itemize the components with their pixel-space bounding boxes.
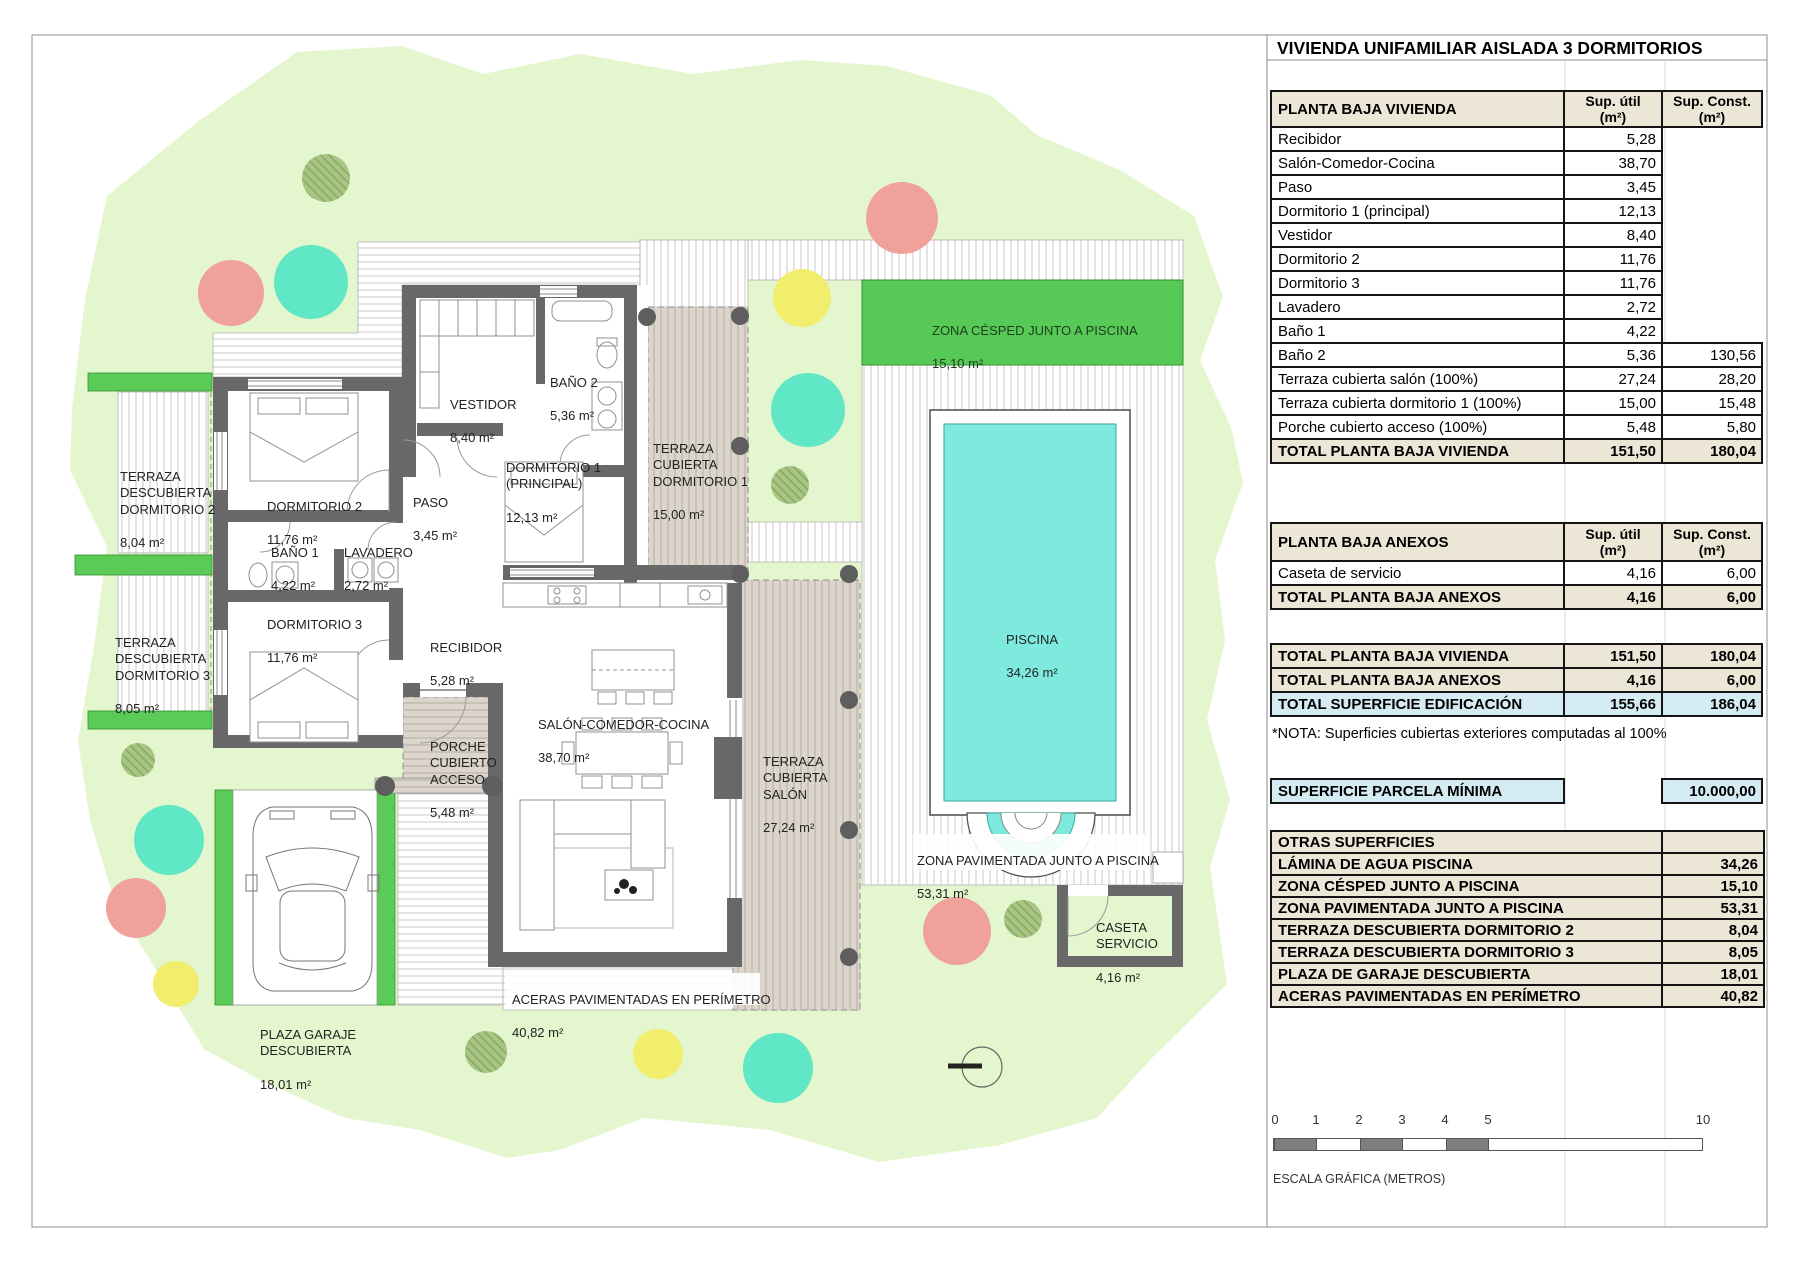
row-label: Porche cubierto acceso (100%) [1270,414,1565,440]
row-sup-util: 2,72 [1563,294,1663,320]
label-aceras: ACERAS PAVIMENTADAS EN PERÍMETRO 40,82 m… [512,975,771,1058]
tree-yellow [153,961,199,1007]
table-body: LÁMINA DE AGUA PISCINA 34,26 ZONA CÉSPED… [1270,852,1770,1008]
table-header: PLANTA BAJA VIVIENDA [1270,90,1565,128]
table-row: Salón-Comedor-Cocina 38,70 [1270,150,1770,176]
label-paso: PASO 3,45 m² [413,478,457,561]
table-total-row: TOTAL PLANTA BAJA VIVIENDA 151,50 180,04 [1270,438,1770,464]
table-body: Recibidor 5,28 Salón-Comedor-Cocina 38,7… [1270,126,1770,440]
table-header: OTRAS SUPERFICIES [1270,830,1663,854]
table-row: ZONA CÉSPED JUNTO A PISCINA 15,10 [1270,874,1770,898]
tree-olive [465,1031,507,1073]
row-value: 53,31 [1661,896,1765,920]
tree-teal [134,805,204,875]
row-label: Terraza cubierta salón (100%) [1270,366,1565,392]
row-sup-const [1661,174,1763,200]
table-resumen: TOTAL PLANTA BAJA VIVIENDA 151,50 180,04… [1270,643,1770,717]
row-label: ACERAS PAVIMENTADAS EN PERÍMETRO [1270,984,1663,1008]
row-sup-const [1661,198,1763,224]
scale-tick: 4 [1441,1112,1448,1127]
row-label: ZONA CÉSPED JUNTO A PISCINA [1270,874,1663,898]
tree-salmon [106,878,166,938]
table-header-row: OTRAS SUPERFICIES [1270,830,1770,854]
row-sup-util: 5,36 [1563,342,1663,368]
row-sup-const: 5,80 [1661,414,1763,440]
row-label: Terraza cubierta dormitorio 1 (100%) [1270,390,1565,416]
table-otras-superficies: OTRAS SUPERFICIES LÁMINA DE AGUA PISCINA… [1270,830,1770,1008]
table-header: PLANTA BAJA ANEXOS [1270,522,1565,562]
green-bar-1 [88,373,212,391]
row-value: 40,82 [1661,984,1765,1008]
row-sup-const [1661,294,1763,320]
label-dormitorio3: DORMITORIO 3 11,76 m² [267,600,362,683]
row-label: Baño 1 [1270,318,1565,344]
row-label: PLAZA DE GARAJE DESCUBIERTA [1270,962,1663,986]
label-bano2: BAÑO 2 5,36 m² [550,358,598,441]
table-header-row: PLANTA BAJA VIVIENDA Sup. útil (m²) Sup.… [1270,90,1770,128]
row-value: 34,26 [1661,852,1765,876]
page-title: VIVIENDA UNIFAMILIAR AISLADA 3 DORMITORI… [1277,38,1703,59]
tree-teal [274,245,348,319]
row-sup-util: 11,76 [1563,270,1663,296]
row-label: Vestidor [1270,222,1565,248]
table-total-row: TOTAL PLANTA BAJA ANEXOS 4,16 6,00 [1270,584,1770,610]
row-label: TERRAZA DESCUBIERTA DORMITORIO 3 [1270,940,1663,964]
table-row: Dormitorio 3 11,76 [1270,270,1770,296]
page: TERRAZA DESCUBIERTA DORMITORIO 2 8,04 m²… [0,0,1800,1272]
garage-green-strip-left [215,790,233,1005]
row-sup-const [1661,246,1763,272]
row-value: 8,04 [1661,918,1765,942]
row-sup-util: 27,24 [1563,366,1663,392]
label-zona-cesped: ZONA CÉSPED JUNTO A PISCINA 15,10 m² [932,306,1138,389]
table-planta-baja-anexos: PLANTA BAJA ANEXOS Sup. útil (m²) Sup. C… [1270,522,1770,610]
tree-olive [121,743,155,777]
scale-tick: 0 [1271,1112,1278,1127]
table-row: Terraza cubierta salón (100%) 27,24 28,2… [1270,366,1770,392]
row-label: Salón-Comedor-Cocina [1270,150,1565,176]
table-header-row: PLANTA BAJA ANEXOS Sup. útil (m²) Sup. C… [1270,522,1770,562]
row-label: Dormitorio 3 [1270,270,1565,296]
resumen-row-total-edificacion: TOTAL SUPERFICIE EDIFICACIÓN 155,66 186,… [1270,691,1770,717]
row-sup-util: 11,76 [1563,246,1663,272]
table-parcela: SUPERFICIE PARCELA MÍNIMA 10.000,00 [1270,778,1770,804]
resumen-row-vivienda: TOTAL PLANTA BAJA VIVIENDA 151,50 180,04 [1270,643,1770,669]
row-sup-util: 5,48 [1563,414,1663,440]
graphic-scale: 0 1 2 3 4 5 10 ESCALA GRÁFICA (METROS) [1273,1112,1713,1202]
row-sup-util: 38,70 [1563,150,1663,176]
label-lavadero: LAVADERO 2,72 m² [344,528,413,611]
row-sup-util: 15,00 [1563,390,1663,416]
table-row: Dormitorio 1 (principal) 12,13 [1270,198,1770,224]
tree-olive [771,466,809,504]
label-terraza-cub-salon: TERRAZA CUBIERTA SALÓN 27,24 m² [763,737,828,853]
row-sup-const [1661,126,1763,152]
row-sup-const [1661,222,1763,248]
paving-top-gap [640,240,748,307]
label-porche: PORCHE CUBIERTO ACCESO 5,48 m² [430,722,497,838]
scale-tick: 10 [1696,1112,1710,1127]
row-sup-util: 4,22 [1563,318,1663,344]
table-row: Porche cubierto acceso (100%) 5,48 5,80 [1270,414,1770,440]
col-header-sup-util: Sup. útil (m²) [1563,522,1663,562]
table-planta-baja-vivienda: PLANTA BAJA VIVIENDA Sup. útil (m²) Sup.… [1270,90,1770,464]
table-row: TERRAZA DESCUBIERTA DORMITORIO 2 8,04 [1270,918,1770,942]
table-body: Caseta de servicio 4,16 6,00 [1270,560,1770,586]
scale-tick: 1 [1312,1112,1319,1127]
row-label: Recibidor [1270,126,1565,152]
label-recibidor: RECIBIDOR 5,28 m² [430,623,502,706]
label-dormitorio1: DORMITORIO 1 (PRINCIPAL) 12,13 m² [506,443,601,543]
row-label: Baño 2 [1270,342,1565,368]
table-row: Vestidor 8,40 [1270,222,1770,248]
row-sup-const [1661,270,1763,296]
row-label: Dormitorio 2 [1270,246,1565,272]
table-row: Paso 3,45 [1270,174,1770,200]
label-plaza-garaje: PLAZA GARAJE DESCUBIERTA 18,01 m² [260,1010,356,1110]
row-sup-const: 130,56 [1661,342,1763,368]
col-header-sup-const: Sup. Const. (m²) [1661,522,1763,562]
row-sup-const [1661,150,1763,176]
row-sup-util: 3,45 [1563,174,1663,200]
scale-tick: 5 [1484,1112,1491,1127]
row-label: Lavadero [1270,294,1565,320]
label-terraza-dorm3: TERRAZA DESCUBIERTA DORMITORIO 3 8,05 m² [115,618,210,734]
row-sup-util: 4,16 [1563,560,1663,586]
row-sup-const: 28,20 [1661,366,1763,392]
row-label: ZONA PAVIMENTADA JUNTO A PISCINA [1270,896,1663,920]
table-row: Caseta de servicio 4,16 6,00 [1270,560,1770,586]
row-label: TERRAZA DESCUBIERTA DORMITORIO 2 [1270,918,1663,942]
table-row: Recibidor 5,28 [1270,126,1770,152]
row-value: 8,05 [1661,940,1765,964]
row-label: Dormitorio 1 (principal) [1270,198,1565,224]
table-row: Terraza cubierta dormitorio 1 (100%) 15,… [1270,390,1770,416]
row-value: 18,01 [1661,962,1765,986]
table-row: PLAZA DE GARAJE DESCUBIERTA 18,01 [1270,962,1770,986]
table-row: ACERAS PAVIMENTADAS EN PERÍMETRO 40,82 [1270,984,1770,1008]
row-value: 15,10 [1661,874,1765,898]
garage-green-strip-right [377,790,395,1005]
scale-bar-label: ESCALA GRÁFICA (METROS) [1273,1172,1445,1186]
tree-yellow [773,269,831,327]
col-header-sup-util: Sup. útil (m²) [1563,90,1663,128]
table-row: Baño 2 5,36 130,56 [1270,342,1770,368]
tree-teal [771,373,845,447]
resumen-row-anexos: TOTAL PLANTA BAJA ANEXOS 4,16 6,00 [1270,667,1770,693]
label-caseta: CASETA SERVICIO 4,16 m² [1096,903,1158,1003]
tree-olive [302,154,350,202]
table-row: Dormitorio 2 11,76 [1270,246,1770,272]
table-row: Lavadero 2,72 [1270,294,1770,320]
parcela-row: SUPERFICIE PARCELA MÍNIMA 10.000,00 [1270,778,1770,804]
row-sup-const: 6,00 [1661,560,1763,586]
label-salon: SALÓN-COMEDOR-COCINA 38,70 m² [538,700,709,783]
tree-salmon [866,182,938,254]
table-row: LÁMINA DE AGUA PISCINA 34,26 [1270,852,1770,876]
scale-tick: 3 [1398,1112,1405,1127]
row-sup-util: 8,40 [1563,222,1663,248]
table-row: Baño 1 4,22 [1270,318,1770,344]
row-sup-const: 15,48 [1661,390,1763,416]
row-label: Caseta de servicio [1270,560,1565,586]
table-row: ZONA PAVIMENTADA JUNTO A PISCINA 53,31 [1270,896,1770,920]
row-label: LÁMINA DE AGUA PISCINA [1270,852,1663,876]
parcela-value: 10.000,00 [1661,778,1763,804]
label-terraza-dorm2: TERRAZA DESCUBIERTA DORMITORIO 2 8,04 m² [120,452,215,568]
label-terraza-cub-dorm1: TERRAZA CUBIERTA DORMITORIO 1 15,00 m² [653,424,748,540]
table-row: TERRAZA DESCUBIERTA DORMITORIO 3 8,05 [1270,940,1770,964]
row-sup-util: 5,28 [1563,126,1663,152]
note-text: *NOTA: Superficies cubiertas exteriores … [1272,726,1667,742]
paving-connector [748,522,862,562]
label-bano1: BAÑO 1 4,22 m² [271,528,319,611]
row-sup-const [1661,318,1763,344]
col-header-sup-const: Sup. Const. (m²) [1661,90,1763,128]
scale-tick: 2 [1355,1112,1362,1127]
row-label: Paso [1270,174,1565,200]
label-piscina: PISCINA 34,26 m² [972,615,1092,698]
row-sup-util: 12,13 [1563,198,1663,224]
tree-salmon [198,260,264,326]
scale-bar [1273,1138,1703,1151]
